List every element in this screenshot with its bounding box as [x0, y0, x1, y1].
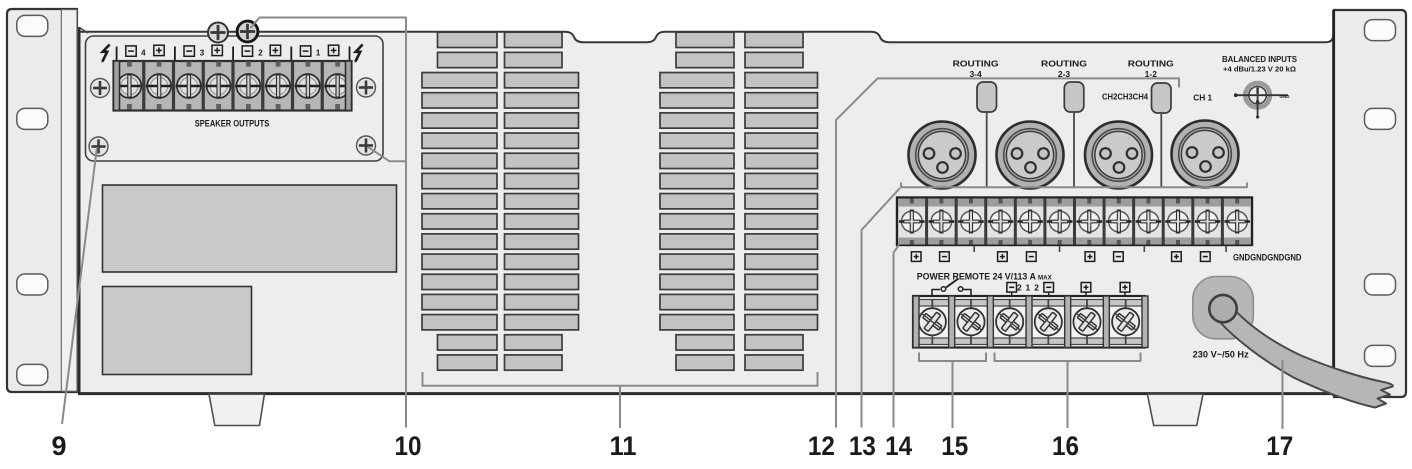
svg-text:POWER REMOTE 24 V/113 A: POWER REMOTE 24 V/113 A — [917, 272, 1036, 282]
svg-text:2: 2 — [258, 48, 263, 57]
svg-text:SPEAKER OUTPUTS: SPEAKER OUTPUTS — [195, 119, 270, 130]
svg-text:ROUTING: ROUTING — [953, 59, 999, 69]
svg-text:11: 11 — [610, 431, 637, 461]
svg-text:1: 1 — [316, 48, 321, 57]
svg-text:9: 9 — [51, 431, 66, 461]
svg-text:14: 14 — [885, 431, 912, 461]
svg-text:1-2: 1-2 — [1145, 69, 1158, 79]
svg-text:+4 dBu/1.23 V 20 kΩ: +4 dBu/1.23 V 20 kΩ — [1223, 65, 1296, 74]
svg-text:2: 2 — [1034, 283, 1039, 293]
svg-text:2: 2 — [1017, 283, 1022, 293]
svg-text:15: 15 — [941, 431, 968, 461]
svg-text:17: 17 — [1266, 431, 1293, 461]
svg-text:CH2CH3CH4: CH2CH3CH4 — [1102, 93, 1148, 102]
svg-text:GND: GND — [1280, 94, 1290, 100]
svg-text:3: 3 — [200, 48, 205, 57]
svg-text:10: 10 — [395, 431, 422, 461]
svg-text:2-3: 2-3 — [1058, 69, 1071, 79]
svg-text:16: 16 — [1052, 431, 1079, 461]
svg-text:230 V~/50 Hz: 230 V~/50 Hz — [1193, 349, 1250, 359]
svg-text:13: 13 — [849, 431, 876, 461]
svg-text:12: 12 — [808, 431, 835, 461]
svg-text:3-4: 3-4 — [969, 69, 982, 79]
svg-text:ROUTING: ROUTING — [1128, 59, 1174, 69]
svg-text:ROUTING: ROUTING — [1041, 59, 1087, 69]
svg-text:4: 4 — [141, 48, 146, 57]
svg-text:1: 1 — [1026, 283, 1031, 293]
svg-text:GNDGNDGNDGND: GNDGNDGNDGND — [1233, 252, 1302, 262]
svg-text:CH 1: CH 1 — [1193, 93, 1212, 103]
svg-text:MAX: MAX — [1038, 275, 1053, 282]
svg-text:BALANCED INPUTS: BALANCED INPUTS — [1222, 55, 1298, 64]
